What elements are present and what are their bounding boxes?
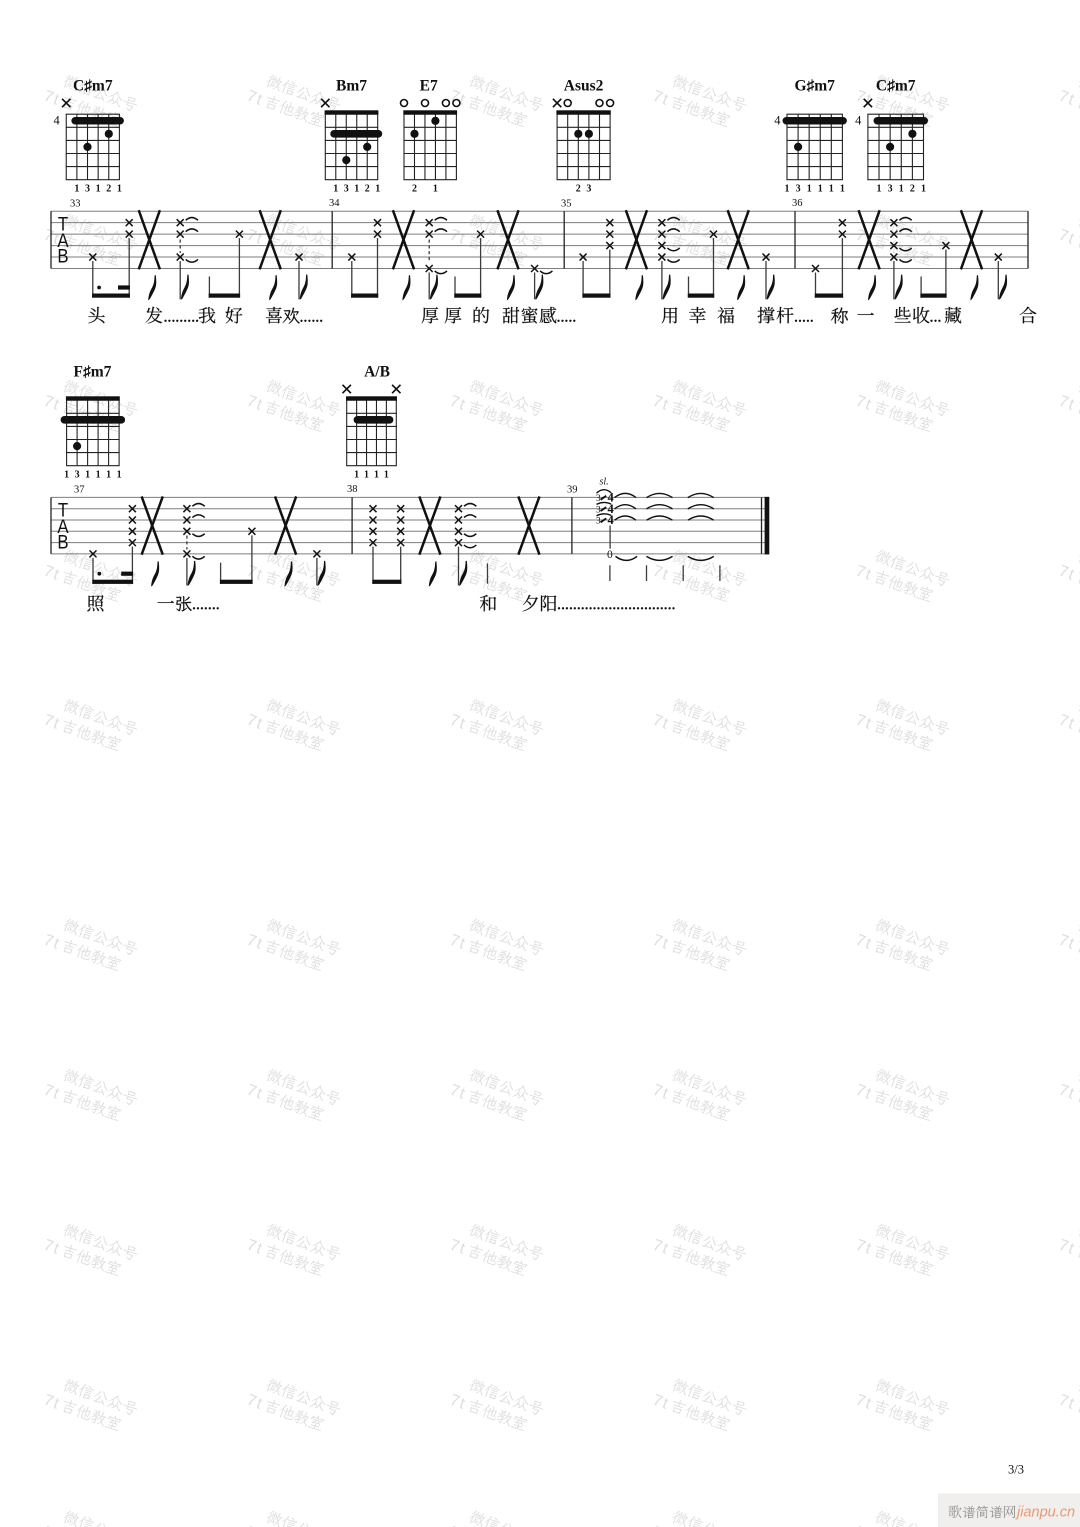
svg-text:1: 1 (384, 469, 389, 480)
svg-text:C♯m7: C♯m7 (876, 78, 916, 95)
svg-text:1: 1 (64, 469, 69, 480)
svg-text:jianpu.cn: jianpu.cn (1015, 1505, 1075, 1521)
svg-text:1: 1 (818, 183, 823, 194)
svg-text:G♯m7: G♯m7 (794, 78, 835, 95)
svg-text:1: 1 (74, 183, 79, 194)
svg-text:1: 1 (354, 469, 359, 480)
svg-text:34: 34 (329, 198, 340, 209)
svg-text:35: 35 (561, 199, 572, 210)
svg-text:3: 3 (75, 469, 80, 480)
svg-text:38: 38 (347, 484, 358, 495)
svg-text:B: B (57, 245, 68, 266)
svg-text:3/3: 3/3 (1008, 1463, 1024, 1477)
svg-text:33: 33 (70, 199, 81, 210)
svg-text:3: 3 (796, 183, 801, 194)
svg-text:1: 1 (106, 469, 111, 480)
svg-text:1: 1 (364, 469, 369, 480)
svg-text:4: 4 (774, 114, 781, 128)
svg-text:1: 1 (117, 183, 122, 194)
svg-text:1: 1 (807, 183, 812, 194)
svg-text:3: 3 (344, 183, 349, 194)
svg-text:1: 1 (899, 183, 904, 194)
svg-text:3: 3 (888, 183, 893, 194)
svg-text:1: 1 (433, 183, 438, 194)
svg-text:1: 1 (333, 183, 338, 194)
svg-text:E7: E7 (420, 78, 438, 95)
svg-text:sl.: sl. (600, 477, 609, 488)
svg-text:1: 1 (785, 183, 790, 194)
svg-text:1: 1 (96, 469, 101, 480)
svg-text:1: 1 (829, 183, 834, 194)
svg-text:2: 2 (106, 183, 111, 194)
svg-text:37: 37 (74, 485, 85, 496)
svg-text:2: 2 (576, 183, 581, 194)
svg-text:2: 2 (412, 183, 417, 194)
svg-text:1: 1 (117, 469, 122, 480)
svg-text:1: 1 (840, 183, 845, 194)
svg-text:2: 2 (365, 183, 370, 194)
svg-text:39: 39 (567, 485, 578, 496)
svg-text:1: 1 (96, 183, 101, 194)
svg-text:1: 1 (877, 183, 882, 194)
svg-text:3: 3 (586, 183, 591, 194)
svg-text:C♯m7: C♯m7 (73, 78, 113, 95)
svg-text:0: 0 (607, 549, 613, 561)
svg-text:1: 1 (85, 469, 90, 480)
svg-text:1: 1 (375, 183, 380, 194)
svg-text:Bm7: Bm7 (336, 78, 367, 95)
svg-text:3: 3 (85, 183, 90, 194)
svg-text:4: 4 (54, 114, 61, 128)
svg-text:1: 1 (921, 183, 926, 194)
svg-text:36: 36 (792, 198, 803, 209)
svg-text:1: 1 (354, 183, 359, 194)
svg-text:2: 2 (910, 183, 915, 194)
svg-text:F♯m7: F♯m7 (74, 364, 112, 381)
svg-text:B: B (57, 531, 68, 552)
svg-text:4: 4 (855, 114, 862, 128)
svg-text:1: 1 (374, 469, 379, 480)
svg-text:A/B: A/B (364, 364, 390, 381)
svg-text:Asus2: Asus2 (564, 78, 604, 95)
